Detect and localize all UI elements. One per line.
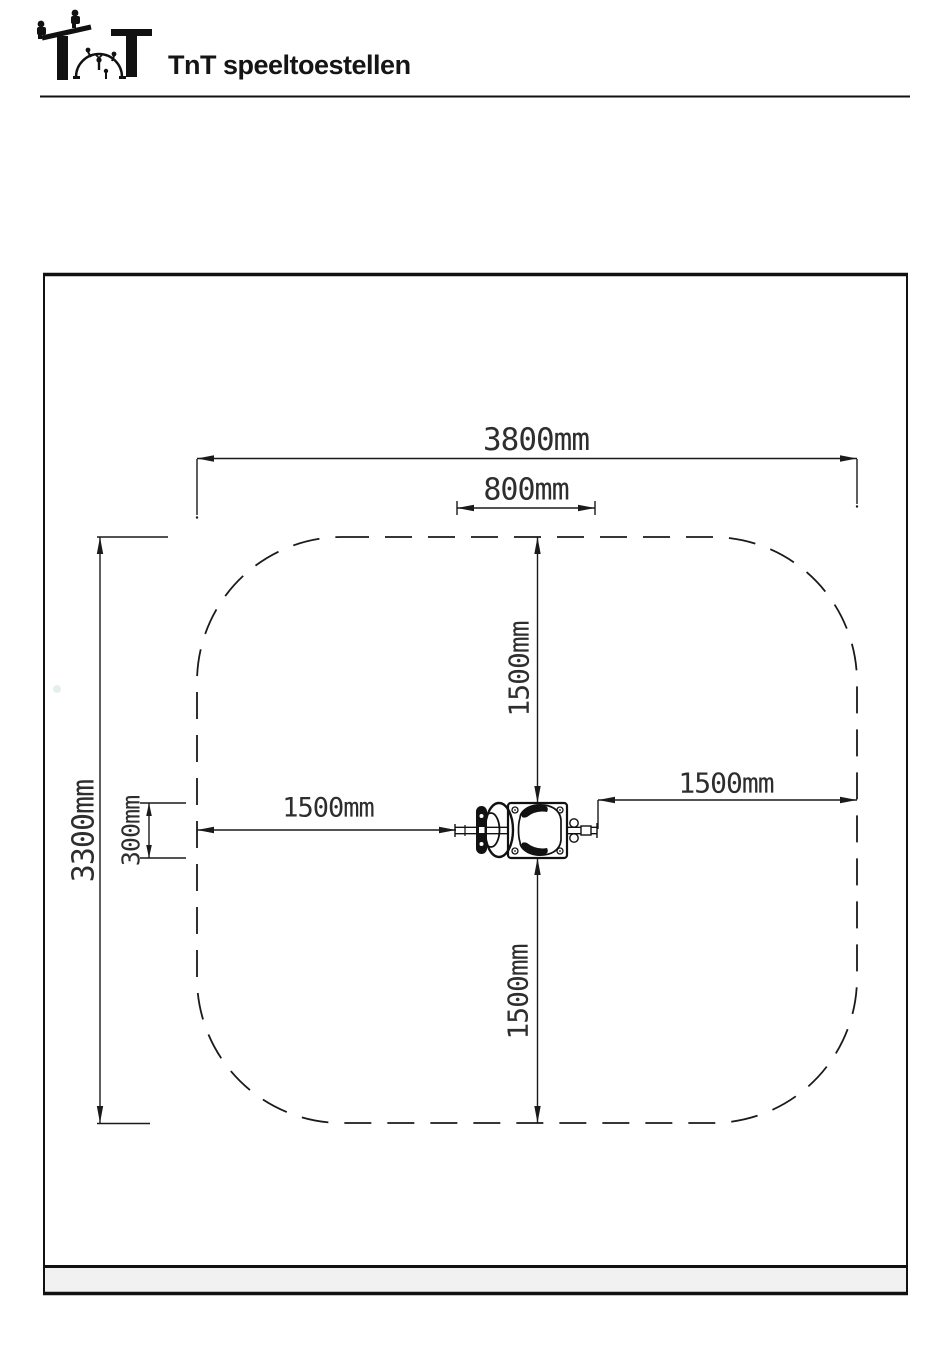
dim-device-depth-line (140, 803, 186, 858)
dim-label-clearance-bottom: 1500mm (502, 944, 535, 1039)
dim-label-device-width: 800mm (483, 473, 568, 508)
dim-clearance-bottom-line (534, 858, 540, 1123)
dim-label-clearance-top: 1500mm (503, 621, 536, 716)
dim-label-total-height: 3300mm (67, 780, 102, 882)
document-page: TnT speeltoestellen 3800mm 800mm 1500mm … (0, 0, 950, 1369)
frame-footer-band (45, 1268, 906, 1292)
drawing-canvas (0, 0, 950, 1369)
dim-label-total-width: 3800mm (483, 422, 589, 458)
dim-clearance-left-line (197, 827, 456, 833)
dim-label-clearance-right: 1500mm (678, 767, 773, 800)
paper-blemish (53, 685, 61, 693)
drawing-frame (43, 275, 908, 1294)
dim-clearance-right-line (598, 797, 857, 829)
dim-label-device-depth: 300mm (117, 796, 146, 866)
spring-rider-top-view (455, 803, 597, 858)
brand-title: TnT speeltoestellen (168, 50, 411, 81)
dim-label-clearance-left: 1500mm (282, 793, 374, 824)
tnt-logo-icon (37, 10, 152, 80)
